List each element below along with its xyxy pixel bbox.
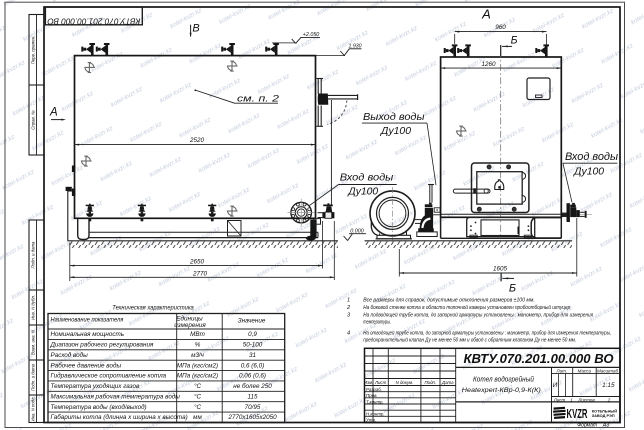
svg-text:Б: Б <box>511 34 518 46</box>
svg-text:Инв. N подл.: Инв. N подл. <box>31 396 36 421</box>
svg-text:А: А <box>481 6 491 21</box>
svg-text:%: % <box>195 341 201 348</box>
svg-text:1.930: 1.930 <box>349 43 362 49</box>
svg-text:°С: °С <box>194 392 202 400</box>
svg-text:4: 4 <box>347 330 350 336</box>
svg-text:Лист: Лист <box>374 380 387 385</box>
svg-text:50-100: 50-100 <box>243 341 263 348</box>
svg-text:Изм.: Изм. <box>364 380 373 385</box>
svg-text:Листов: Листов <box>577 397 595 402</box>
svg-text:Вход воды: Вход воды <box>340 173 394 184</box>
svg-text:Наименование показателя: Наименование показателя <box>51 317 124 324</box>
svg-text:Heatexpert-КВр-0,9-К(К): Heatexpert-КВр-0,9-К(К) <box>462 387 541 394</box>
svg-text:Лит.: Лит. <box>556 368 568 373</box>
svg-text:ЗАВОД РЭП: ЗАВОД РЭП <box>592 413 615 418</box>
svg-text:1: 1 <box>347 298 350 304</box>
svg-text:KVZR: KVZR <box>567 406 588 421</box>
svg-text:2770х1605х2050: 2770х1605х2050 <box>227 414 277 421</box>
svg-text:КВТУ.070.201.00.000 ВО: КВТУ.070.201.00.000 ВО <box>47 17 140 27</box>
svg-text:Ду100: Ду100 <box>573 166 604 177</box>
svg-text:31: 31 <box>249 352 256 359</box>
svg-text:Справ. №: Справ. № <box>31 110 36 130</box>
svg-text:Дата: Дата <box>441 380 454 385</box>
svg-text:Вход воды: Вход воды <box>565 151 619 163</box>
svg-text:Б: Б <box>509 282 516 294</box>
svg-text:2520: 2520 <box>189 137 205 144</box>
svg-text:°С: °С <box>194 403 202 411</box>
svg-text:0,6 (6,0): 0,6 (6,0) <box>241 362 264 369</box>
svg-text:мм: мм <box>193 414 202 421</box>
svg-text:Расход воды: Расход воды <box>51 351 89 359</box>
svg-text:м3/ч: м3/ч <box>191 352 205 359</box>
svg-text:Лист: Лист <box>553 397 566 402</box>
svg-text:Т.контр.: Т.контр. <box>366 399 384 404</box>
svg-text:А: А <box>49 107 58 119</box>
svg-text:предохранительный клапан Ду н: предохранительный клапан Ду не менее 50 … <box>363 337 576 344</box>
svg-text:Ду100: Ду100 <box>347 186 378 197</box>
svg-text:МПа (кгс/см2): МПа (кгс/см2) <box>177 373 218 380</box>
svg-text:Подп. и дата: Подп. и дата <box>31 241 36 269</box>
svg-text:Н.контр.: Н.контр. <box>366 411 385 416</box>
svg-text:N докум.: N докум. <box>396 380 414 385</box>
svg-text:960: 960 <box>495 24 506 31</box>
svg-text:Все размеры для справок, допус: Все размеры для справок, допустимые откл… <box>363 298 535 304</box>
svg-text:0,9: 0,9 <box>248 331 257 338</box>
svg-text:КВТУ.070.201.00.000 ВО: КВТУ.070.201.00.000 ВО <box>464 351 614 366</box>
svg-text:температуры.: температуры. <box>363 320 391 326</box>
svg-text:измерения: измерения <box>174 322 206 329</box>
svg-text:115: 115 <box>247 393 258 400</box>
svg-text:Значение: Значение <box>238 317 266 324</box>
svg-text:Масштаб: Масштаб <box>597 368 618 373</box>
svg-text:2770: 2770 <box>192 270 208 277</box>
svg-text:В: В <box>192 23 199 35</box>
svg-text:Максимальная рабочая температу: Максимальная рабочая температура воды <box>51 392 181 400</box>
svg-text:1:15: 1:15 <box>602 382 615 389</box>
svg-text:+2.050: +2.050 <box>303 32 320 38</box>
svg-text:Габариты котла (длинна х ширин: Габариты котла (длинна х ширина х высота… <box>51 413 188 421</box>
svg-text:Инв. N дубл.: Инв. N дубл. <box>31 295 36 320</box>
svg-text:Формат: Формат <box>577 422 597 428</box>
svg-text:2: 2 <box>607 397 611 402</box>
svg-text:Пров.: Пров. <box>366 393 378 398</box>
svg-text:Разраб.: Разраб. <box>366 387 382 392</box>
svg-text:И: И <box>553 382 558 389</box>
svg-text:А3: А3 <box>602 422 609 428</box>
svg-text:На подводящей трубе котла, до: На подводящей трубе котла, до запорной а… <box>363 311 593 318</box>
svg-text:не более 250: не более 250 <box>233 382 272 390</box>
svg-text:Подп. и дата: Подп. и дата <box>31 363 36 391</box>
svg-text:Масса: Масса <box>578 368 592 373</box>
svg-text:Выход воды: Выход воды <box>363 112 425 123</box>
svg-text:Диапазон рабочего регулировани: Диапазон рабочего регулирования <box>50 340 154 348</box>
svg-text:Рабочее давление воды: Рабочее давление воды <box>51 361 122 369</box>
svg-text:Утв.: Утв. <box>366 418 376 423</box>
svg-text:На боковой стенке котла в обла: На боковой стенке котла в области топочн… <box>363 304 570 311</box>
svg-text:0,06 (0,6): 0,06 (0,6) <box>239 373 266 380</box>
svg-text:Номинальная мощность: Номинальная мощность <box>51 331 125 338</box>
svg-text:Техническая характеристика: Техническая характеристика <box>112 304 194 311</box>
svg-text:Температура воды (вход/выход): Температура воды (вход/выход) <box>51 403 147 411</box>
svg-text:Температура уходящих газов: Температура уходящих газов <box>51 382 140 390</box>
svg-text:70/95: 70/95 <box>245 404 261 411</box>
svg-text:°С: °С <box>194 382 202 390</box>
svg-text:Взам. инв. N: Взам. инв. N <box>31 329 36 355</box>
svg-text:МПа (кгс/см2): МПа (кгс/см2) <box>177 362 218 369</box>
svg-text:см. п. 2: см. п. 2 <box>237 93 280 103</box>
svg-text:Гидравлическое сопротивление к: Гидравлическое сопротивление котла <box>51 372 167 380</box>
svg-text:Подп.: Подп. <box>424 380 436 385</box>
svg-text:Ду100: Ду100 <box>380 126 411 137</box>
svg-text:МВт: МВт <box>190 331 205 338</box>
svg-text:2650: 2650 <box>189 259 205 266</box>
svg-text:Котел водогрейный: Котел водогрейный <box>473 376 534 384</box>
svg-text:1605: 1605 <box>493 265 508 272</box>
svg-text:1260: 1260 <box>481 61 496 68</box>
svg-text:На отводящей трубе котла, до з: На отводящей трубе котла, до запорной ар… <box>363 329 611 336</box>
svg-text:Перв. примен.: Перв. примен. <box>31 36 36 65</box>
